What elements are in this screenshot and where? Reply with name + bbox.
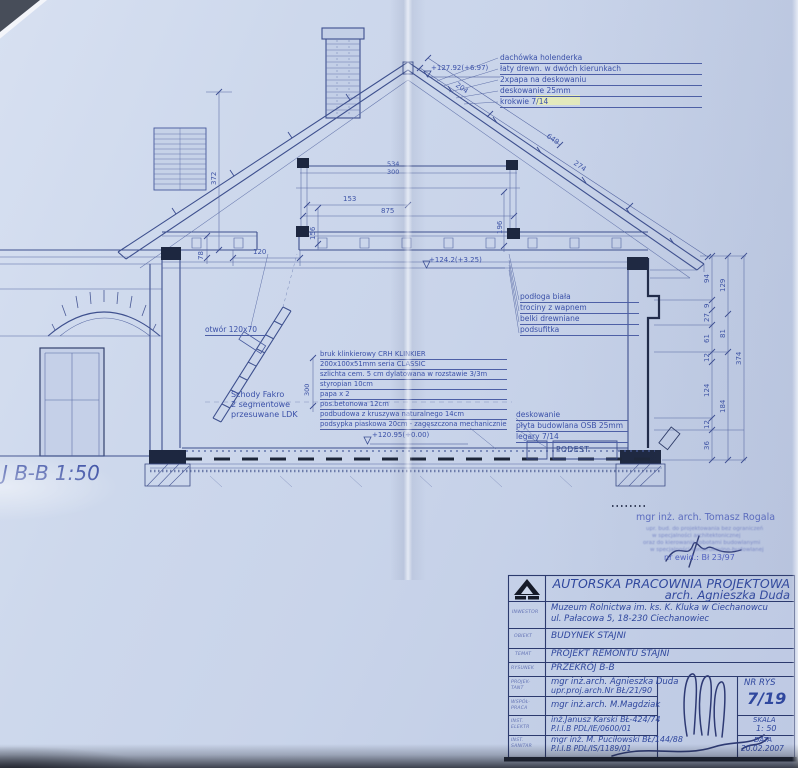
title-block-heavy-edge	[504, 757, 797, 762]
arch-voussoirs	[52, 290, 156, 330]
dim-875: 875	[381, 208, 394, 216]
footings	[145, 464, 665, 486]
sanitar-value: P.I.I.B PDL/IS/1189/01	[551, 745, 631, 753]
field-label-obiekt: OBIEKT	[514, 634, 532, 640]
dim-300-floor: 300	[304, 384, 311, 396]
ceiling-beams	[192, 238, 621, 248]
dim-300: 300	[387, 169, 399, 176]
elevation-ridge: +127.92(+6.97)	[431, 65, 488, 73]
field-label-inwestor: INWESTOR	[512, 610, 538, 616]
right-wall-heavy	[648, 258, 659, 448]
chimney-cap	[322, 28, 364, 39]
nr-rys-value: 7/19	[747, 690, 786, 708]
dim-156: 156	[310, 227, 318, 240]
field-label-projektant: PROJEK- TANT	[511, 680, 541, 691]
temat-value: PROJEKT REMONTU STAJNI	[551, 650, 669, 660]
chain-dim: 36	[704, 441, 712, 450]
ground-hatch	[210, 476, 572, 487]
stamp-ewid: nr ewid.: Bł 23/97	[664, 554, 735, 563]
field-label-wspolpraca: WSPÓŁ- PRACA	[511, 700, 541, 711]
opening-label: otwór 120x70	[205, 324, 267, 336]
chain-dim: 12	[704, 353, 712, 362]
stairs-note: Schody Fakro	[231, 391, 284, 400]
podest-label: PODEST	[556, 446, 589, 454]
data-value: 20.02.2007	[741, 745, 784, 753]
elevation-ground: +120.95(+0.00)	[372, 432, 429, 440]
dim-78: 78	[198, 251, 206, 260]
stamp-line: w specjalności architektonicznej	[652, 533, 741, 539]
elevation-attic: +124.2(+3.25)	[429, 257, 482, 265]
dim-120: 120	[253, 249, 266, 257]
chain-dim: 129	[720, 279, 728, 292]
chain-dim: 124	[704, 384, 712, 397]
field-label-temat: TEMAT	[515, 652, 531, 658]
architect-signature	[684, 674, 725, 737]
chain-dim: 12	[704, 420, 712, 429]
chain-dim: 9	[704, 304, 712, 308]
dim-153: 153	[343, 196, 356, 204]
chain-dim: 94	[704, 274, 712, 283]
deck-note: legary 7/14	[516, 431, 628, 443]
roof-note: krokwie 7/14	[500, 96, 702, 108]
obiekt-value: BUDYNEK STAJNI	[551, 632, 626, 642]
chain-dim: 81	[720, 329, 728, 338]
field-label-sanitar: INST. SANITAR	[511, 738, 541, 749]
stairs-note: przesuwane LDK	[231, 411, 298, 420]
elektr-value: P.I.I.B PDL/IE/0600/01	[551, 725, 631, 733]
inwestor-value: ul. Pałacowa 5, 18-230 Ciechanowiec	[551, 615, 709, 624]
wspolpraca-value: mgr inż.arch. M.Magdziak	[551, 701, 660, 710]
nr-rys-label: NR RYS	[744, 679, 775, 688]
dim-372: 372	[211, 172, 219, 185]
inwestor-value: Muzeum Rolnictwa im. ks. K. Kluka w Ciec…	[551, 604, 768, 613]
chain-dim: 374	[736, 352, 744, 365]
subfloor-lines	[150, 464, 662, 468]
dim-196: 196	[497, 221, 505, 234]
skala-value: 1: 50	[756, 725, 777, 734]
stamp-name: mgr inż. arch. Tomasz Rogala	[636, 513, 775, 523]
blueprint-photo: dachówka holenderka łaty drewn. w dwóch …	[0, 0, 798, 768]
chain-dim: 184	[720, 400, 728, 413]
rafter-underside	[140, 80, 690, 278]
edge-joist	[659, 427, 680, 450]
rysunek-value: PRZEKRÓJ B-B	[551, 664, 615, 674]
stairs-note: 2 segmentowe	[231, 401, 290, 410]
footing-hatch	[147, 464, 661, 486]
chain-dim: 61	[704, 334, 712, 343]
stamp-line: upr. bud. do projektowania bez ogranicze…	[646, 526, 763, 532]
field-label-elektr: INST. ELEKTR	[511, 719, 541, 730]
chain-dim: 27	[704, 313, 712, 322]
ceiling-note: podsufitka	[520, 324, 639, 336]
field-label-rysunek: RYSUNEK	[511, 666, 534, 672]
section-label: J B-B 1:50	[2, 462, 100, 484]
projektant-value: upr.proj.arch.Nr BŁ/21/90	[551, 687, 652, 696]
floor-note: podsypka piaskowa 20cm - zagęszczona mec…	[320, 419, 507, 430]
architect-name: arch. Agnieszka Duda	[550, 589, 790, 602]
stamp-line: oraz do kierowania robotami budowlanymi	[643, 540, 760, 546]
studio-logo	[512, 578, 542, 604]
